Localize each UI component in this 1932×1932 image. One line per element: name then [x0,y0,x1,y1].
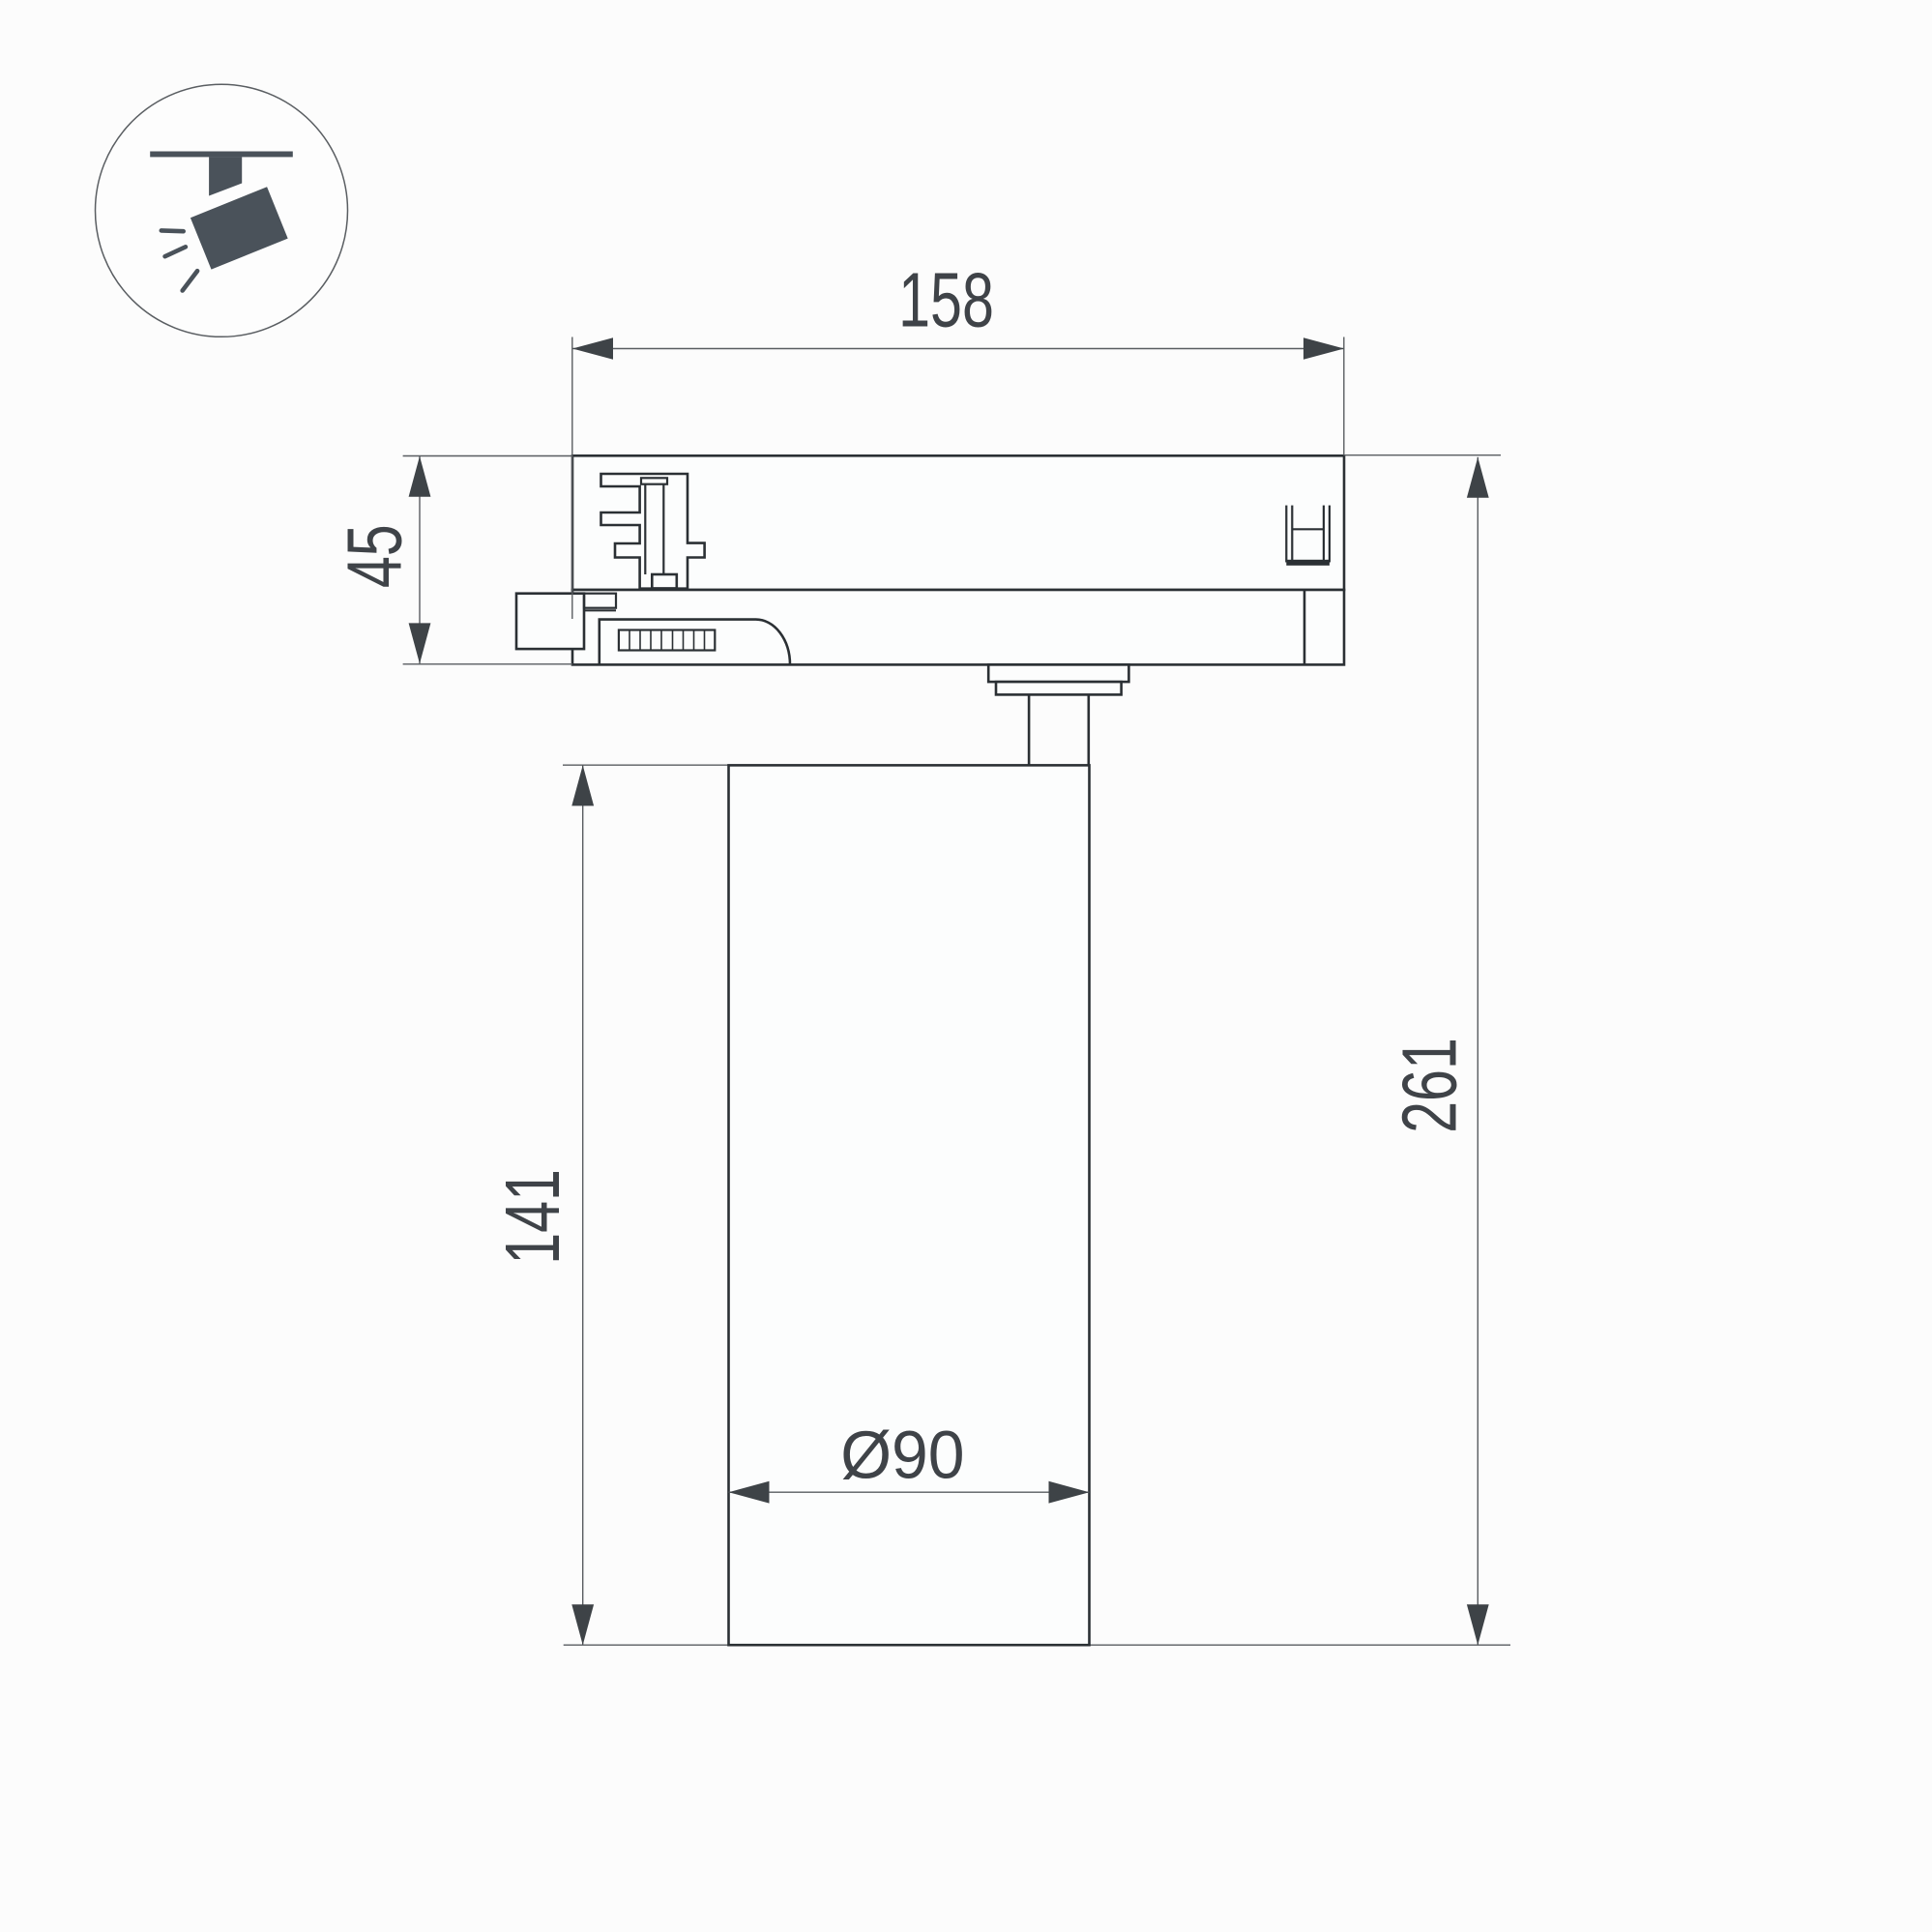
svg-text:261: 261 [1386,1038,1473,1133]
svg-text:45: 45 [331,524,418,588]
svg-text:158: 158 [898,256,994,343]
svg-text:141: 141 [488,1169,575,1265]
svg-text:Ø90: Ø90 [840,1418,964,1493]
